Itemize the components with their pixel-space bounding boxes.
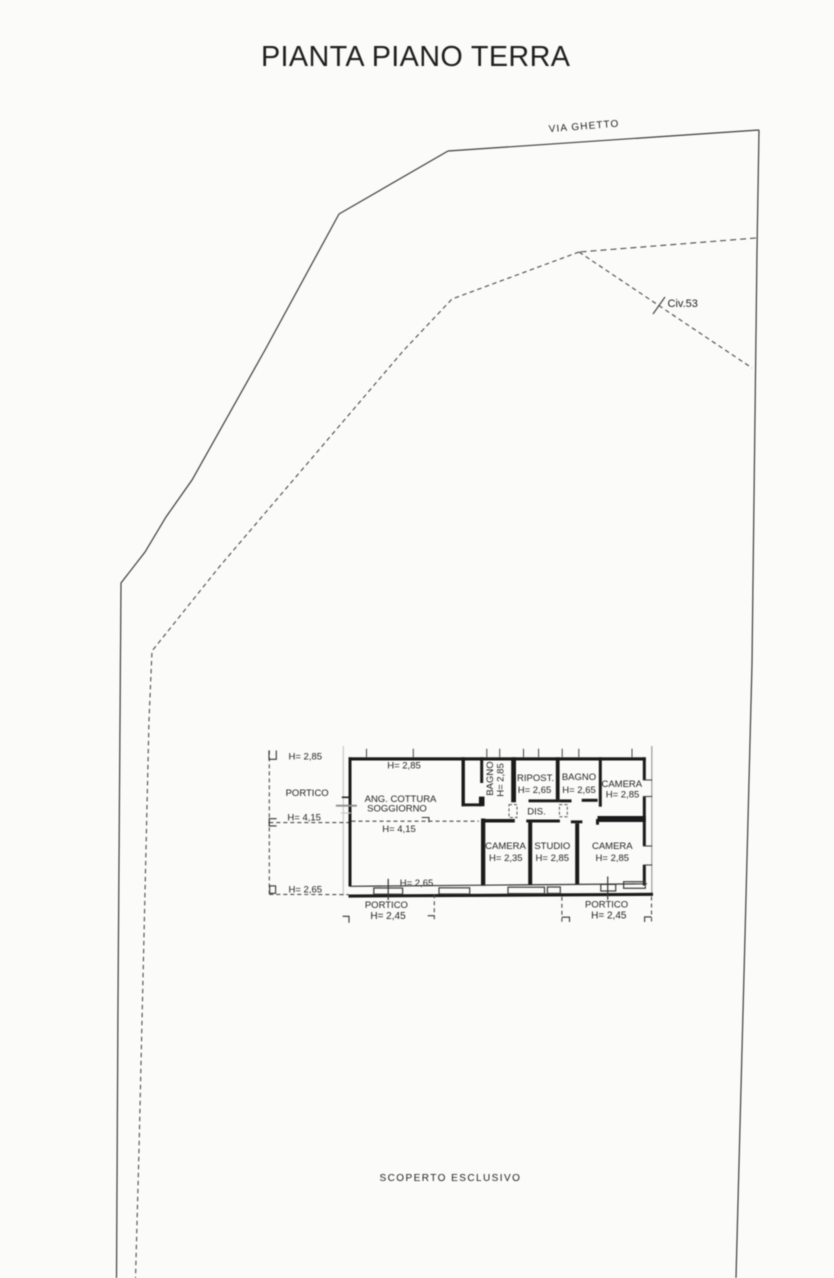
svg-text:H= 2,85: H= 2,85 <box>387 761 421 772</box>
svg-text:BAGNO: BAGNO <box>562 772 596 783</box>
svg-text:PORTICO: PORTICO <box>286 788 329 799</box>
svg-text:H= 2,85: H= 2,85 <box>596 853 630 864</box>
svg-text:STUDIO: STUDIO <box>534 841 570 852</box>
svg-text:SOGGIORNO: SOGGIORNO <box>367 803 427 814</box>
svg-text:H= 2,85: H= 2,85 <box>606 790 640 801</box>
svg-text:H= 4,15: H= 4,15 <box>287 813 321 824</box>
svg-text:DIS.: DIS. <box>527 807 545 818</box>
svg-text:H= 2,85: H= 2,85 <box>495 763 506 797</box>
svg-text:H= 2,65: H= 2,65 <box>562 785 596 796</box>
svg-text:H= 2,45: H= 2,45 <box>591 911 627 922</box>
svg-text:PORTICO: PORTICO <box>365 900 408 911</box>
svg-text:VIA GHETTO: VIA GHETTO <box>548 119 619 136</box>
svg-text:PORTICO: PORTICO <box>585 900 628 911</box>
svg-text:H= 2,65: H= 2,65 <box>400 878 434 889</box>
svg-text:H= 2,85: H= 2,85 <box>289 752 323 763</box>
svg-text:BAGNO: BAGNO <box>485 761 496 795</box>
svg-text:CAMERA: CAMERA <box>601 779 642 790</box>
svg-text:Civ.53: Civ.53 <box>668 298 698 310</box>
svg-text:CAMERA: CAMERA <box>485 841 526 852</box>
svg-text:H= 4,15: H= 4,15 <box>382 824 416 835</box>
svg-text:H= 2,65: H= 2,65 <box>518 785 552 796</box>
svg-text:CAMERA: CAMERA <box>592 841 633 852</box>
svg-text:H= 2,65: H= 2,65 <box>289 885 323 896</box>
svg-text:H= 2,85: H= 2,85 <box>536 853 570 864</box>
svg-text:H= 2,45: H= 2,45 <box>370 911 406 922</box>
svg-text:RIPOST.: RIPOST. <box>517 773 554 784</box>
svg-text:H= 2,35: H= 2,35 <box>489 853 523 864</box>
svg-text:SCOPERTO ESCLUSIVO: SCOPERTO ESCLUSIVO <box>380 1173 522 1184</box>
svg-text:PIANTA PIANO TERRA: PIANTA PIANO TERRA <box>261 41 571 73</box>
